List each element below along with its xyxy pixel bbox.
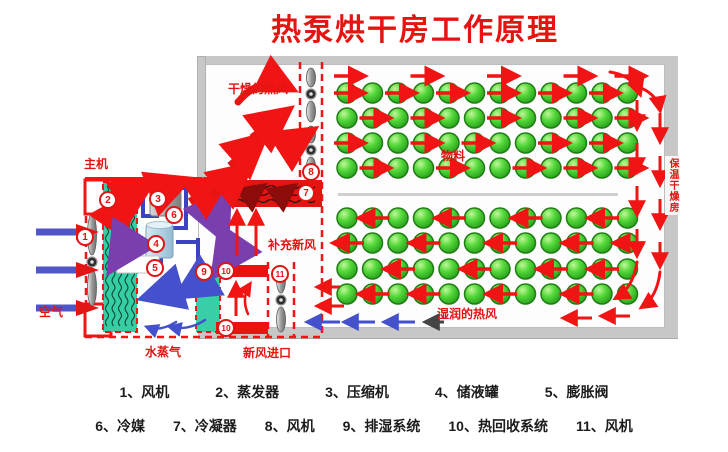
- component-badge-number: 1: [82, 232, 88, 243]
- component-badge-number: 6: [171, 210, 177, 221]
- label-makeup-fresh-air: 补充新风: [268, 236, 316, 253]
- refrigerant-pipe: [120, 266, 163, 270]
- component-badge: [148, 236, 164, 252]
- component-badge: [77, 229, 93, 245]
- legend-item: 1、风机: [120, 382, 170, 402]
- legend-item: 11、风机: [576, 416, 633, 436]
- page-title: 热泵烘干房工作原理: [190, 5, 640, 49]
- fan-1-hub-center: [90, 260, 94, 264]
- refrigerant-pipe: [184, 186, 188, 230]
- refrigerant-pipe: [141, 190, 145, 218]
- air-inlet-arrowhead: [76, 262, 99, 278]
- legend-item: 4、储液罐: [435, 382, 499, 402]
- refrigerant-pipe: [159, 226, 188, 230]
- evaporator-border: [103, 182, 137, 332]
- legend-item: 9、排湿系统: [343, 416, 421, 436]
- liquid-tank: [146, 224, 173, 258]
- airflow-arrow: [158, 181, 184, 191]
- component-badge: [166, 207, 182, 223]
- legend-item: 2、蒸发器: [215, 382, 279, 402]
- label-water-vapor: 水蒸气: [145, 343, 181, 360]
- evaporator: [103, 182, 137, 332]
- host-unit-wall-segment: [85, 180, 107, 214]
- airflow-arrow: [113, 238, 131, 266]
- diagram-canvas: 热泵烘干房工作原理 123456789101011 主机 空气 干燥的热风 补充…: [0, 0, 728, 452]
- fan-1-blade: [88, 214, 97, 255]
- refrigerant-pipe: [141, 214, 159, 218]
- evaporator-coil-wave: [132, 186, 135, 326]
- airflow-arrow: [147, 288, 178, 297]
- component-badge-number: 2: [105, 195, 111, 206]
- liquid-tank-top: [147, 222, 173, 229]
- label-insulated-room: 保温干燥房: [665, 156, 679, 215]
- fan-1-hub: [87, 257, 97, 267]
- legend-item: 6、冷媒: [95, 416, 145, 436]
- air-inlet-arrowhead: [76, 224, 99, 240]
- label-air: 空气: [39, 303, 63, 320]
- refrigerant-pipe: [159, 256, 163, 268]
- air-inlet-arrowhead: [76, 300, 99, 316]
- component-badge: [147, 260, 163, 276]
- component-badge-number: 4: [153, 239, 159, 250]
- evaporator-coil-wave: [106, 186, 109, 326]
- drying-room: [198, 56, 678, 338]
- component-badge-number: 3: [155, 194, 161, 205]
- expansion-valve: [117, 256, 159, 273]
- compressor-top: [151, 176, 181, 184]
- airflow-arrow: [111, 198, 129, 224]
- airflow-arrow: [126, 183, 149, 197]
- legend-item: 10、热回收系统: [448, 416, 548, 436]
- legend-item: 8、风机: [265, 416, 315, 436]
- label-material: 物料: [441, 147, 465, 164]
- legend-item: 3、压缩机: [325, 382, 389, 402]
- label-moist-hot-air: 湿润的热风: [437, 305, 497, 322]
- host-unit-wall-segment: [85, 304, 111, 336]
- legend-row-1: 1、风机2、蒸发器3、压缩机4、储液罐5、膨胀阀: [0, 382, 728, 402]
- drying-room-left-wall: [197, 56, 206, 183]
- component-badge: [150, 191, 166, 207]
- water-vapor-arrow: [147, 322, 176, 329]
- compressor: [150, 178, 181, 216]
- refrigerant-pipe: [176, 240, 200, 244]
- component-badge: [100, 192, 116, 208]
- label-dry-hot-air: 干燥的热风: [228, 80, 288, 97]
- legend-row-2: 6、冷媒7、冷凝器8、风机9、排湿系统10、热回收系统11、风机: [0, 416, 728, 436]
- component-badge-number: 5: [152, 263, 158, 274]
- legend-item: 7、冷凝器: [173, 416, 237, 436]
- label-host-unit: 主机: [84, 155, 108, 172]
- legend-item: 5、膨胀阀: [545, 382, 609, 402]
- evaporator-coil-wave: [119, 186, 122, 326]
- label-fresh-air-inlet: 新风进口: [243, 344, 291, 361]
- room-divider-shelf: [338, 193, 618, 196]
- evaporator-coil-wave: [112, 186, 115, 326]
- evaporator-coil-wave: [125, 186, 128, 326]
- fan-1-blade: [88, 269, 97, 306]
